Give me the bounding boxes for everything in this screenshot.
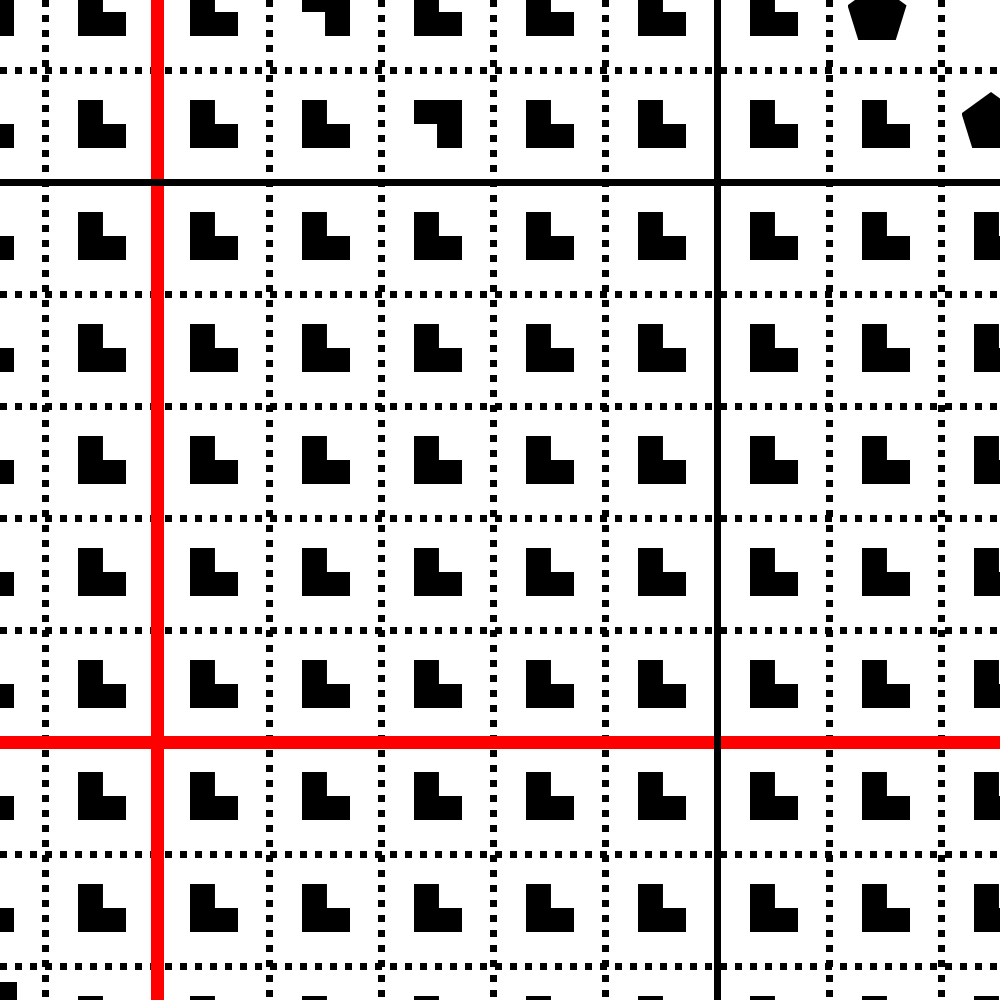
glyph-l[interactable]	[750, 548, 798, 596]
glyph-l[interactable]	[750, 660, 798, 708]
glyph-l[interactable]	[526, 0, 574, 36]
glyph-l[interactable]	[750, 996, 798, 1000]
glyph-l[interactable]	[974, 212, 1000, 260]
red-vertical-line	[151, 0, 164, 1000]
glyph-l[interactable]	[302, 772, 350, 820]
glyph-l[interactable]	[190, 212, 238, 260]
glyph-l[interactable]	[78, 324, 126, 372]
glyph-l[interactable]	[750, 772, 798, 820]
glyph-l[interactable]	[750, 100, 798, 148]
glyph-l[interactable]	[974, 660, 1000, 708]
glyph-l[interactable]	[190, 996, 238, 1000]
black-horizontal-line	[0, 179, 1000, 186]
glyph-l[interactable]	[302, 436, 350, 484]
glyph-l[interactable]	[0, 100, 14, 148]
glyph-l[interactable]	[190, 660, 238, 708]
glyph-l[interactable]	[190, 772, 238, 820]
glyph-l[interactable]	[526, 212, 574, 260]
glyph-l[interactable]	[526, 100, 574, 148]
black-vertical-line	[714, 0, 721, 1000]
glyph-l[interactable]	[414, 436, 462, 484]
glyph-l[interactable]	[78, 772, 126, 820]
glyph-l[interactable]	[414, 884, 462, 932]
glyph-l[interactable]	[974, 436, 1000, 484]
glyph-l[interactable]	[862, 996, 910, 1000]
glyph-l[interactable]	[862, 548, 910, 596]
glyph-l[interactable]	[302, 884, 350, 932]
glyph-l[interactable]	[302, 212, 350, 260]
glyph-l[interactable]	[862, 324, 910, 372]
glyph-l[interactable]	[78, 212, 126, 260]
glyph-l[interactable]	[862, 100, 910, 148]
glyph-pentagon[interactable]	[962, 92, 1000, 148]
glyph-l[interactable]	[78, 660, 126, 708]
glyph-l[interactable]	[750, 436, 798, 484]
glyph-l[interactable]	[0, 324, 14, 372]
glyph-l[interactable]	[414, 996, 462, 1000]
glyph-l[interactable]	[638, 660, 686, 708]
glyph-l[interactable]	[526, 436, 574, 484]
glyph-l[interactable]	[526, 660, 574, 708]
glyph-pentagon[interactable]	[848, 0, 907, 40]
glyph-l[interactable]	[302, 324, 350, 372]
glyph-l[interactable]	[78, 884, 126, 932]
glyph-square[interactable]	[0, 982, 17, 1000]
glyph-l-rotated-180[interactable]	[0, 0, 14, 36]
glyph-l[interactable]	[974, 548, 1000, 596]
glyph-l[interactable]	[750, 324, 798, 372]
glyph-l[interactable]	[0, 884, 14, 932]
glyph-l[interactable]	[78, 0, 126, 36]
glyph-l[interactable]	[78, 436, 126, 484]
glyph-l[interactable]	[0, 772, 14, 820]
glyph-l[interactable]	[526, 996, 574, 1000]
glyph-l[interactable]	[974, 884, 1000, 932]
glyph-l[interactable]	[638, 436, 686, 484]
glyph-l[interactable]	[638, 100, 686, 148]
glyph-l[interactable]	[974, 996, 1000, 1000]
glyph-l[interactable]	[638, 548, 686, 596]
glyph-l[interactable]	[190, 0, 238, 36]
glyph-l[interactable]	[638, 324, 686, 372]
glyph-l[interactable]	[414, 0, 462, 36]
glyph-l[interactable]	[638, 884, 686, 932]
glyph-l[interactable]	[190, 884, 238, 932]
board	[0, 0, 1000, 1000]
glyph-l[interactable]	[750, 0, 798, 36]
glyph-l[interactable]	[78, 548, 126, 596]
glyph-l[interactable]	[862, 884, 910, 932]
glyph-l[interactable]	[190, 100, 238, 148]
glyph-l-rotated-180[interactable]	[414, 100, 462, 148]
red-horizontal-line	[0, 736, 1000, 749]
glyph-l[interactable]	[302, 548, 350, 596]
glyph-l[interactable]	[974, 324, 1000, 372]
glyph-l[interactable]	[414, 212, 462, 260]
glyph-l[interactable]	[638, 0, 686, 36]
glyph-l[interactable]	[526, 548, 574, 596]
glyph-l[interactable]	[750, 212, 798, 260]
glyph-l[interactable]	[0, 212, 14, 260]
glyph-l[interactable]	[190, 548, 238, 596]
glyph-l[interactable]	[526, 324, 574, 372]
glyph-l[interactable]	[526, 884, 574, 932]
glyph-l[interactable]	[862, 660, 910, 708]
glyph-l[interactable]	[302, 660, 350, 708]
glyph-l[interactable]	[414, 660, 462, 708]
glyph-l[interactable]	[862, 212, 910, 260]
glyph-l[interactable]	[78, 996, 126, 1000]
glyph-l[interactable]	[0, 548, 14, 596]
glyph-l[interactable]	[0, 660, 14, 708]
glyph-l-rotated-180[interactable]	[302, 0, 350, 36]
glyph-l[interactable]	[190, 324, 238, 372]
glyph-l[interactable]	[302, 100, 350, 148]
glyph-l[interactable]	[78, 100, 126, 148]
glyph-l[interactable]	[638, 772, 686, 820]
glyph-l[interactable]	[526, 772, 574, 820]
glyph-l[interactable]	[414, 548, 462, 596]
glyph-l[interactable]	[414, 772, 462, 820]
glyph-l[interactable]	[638, 996, 686, 1000]
glyph-l[interactable]	[190, 436, 238, 484]
glyph-l[interactable]	[0, 436, 14, 484]
glyph-l[interactable]	[750, 884, 798, 932]
glyph-l[interactable]	[302, 996, 350, 1000]
glyph-l[interactable]	[862, 772, 910, 820]
glyph-l[interactable]	[414, 324, 462, 372]
glyph-l[interactable]	[862, 436, 910, 484]
glyph-l[interactable]	[974, 772, 1000, 820]
glyph-l[interactable]	[638, 212, 686, 260]
